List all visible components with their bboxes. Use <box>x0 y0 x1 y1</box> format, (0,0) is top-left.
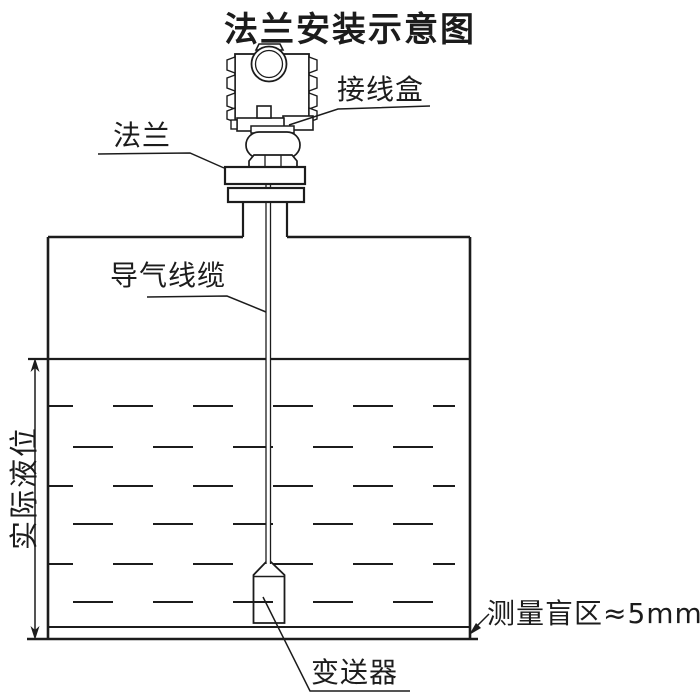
air-guide-cable <box>266 184 271 564</box>
diagram-title: 法兰安装示意图 <box>0 2 700 51</box>
display-cap <box>252 47 287 82</box>
transmitter-head <box>227 44 317 172</box>
label-actual-level: 实际液位 <box>1 413 33 563</box>
label-transmitter: 变送器 <box>311 658 398 687</box>
flange-leader <box>98 153 224 168</box>
label-blind-zone: 测量盲区≈5mm <box>487 599 700 628</box>
label-junction-box: 接线盒 <box>337 75 424 104</box>
housing-fins-right <box>309 57 317 122</box>
housing-fins-left <box>227 57 235 122</box>
flange-plate <box>225 167 305 184</box>
air-cable-leader <box>147 296 266 312</box>
diagram-canvas: 法兰安装示意图 接线盒 法兰 导气线缆 实际液位 变送器 测量盲区≈5mm <box>0 0 700 700</box>
label-air-cable: 导气线缆 <box>110 261 226 290</box>
barrel <box>246 132 300 158</box>
nozzle-collar <box>228 188 304 202</box>
flange-assembly <box>225 167 305 237</box>
tank-outline <box>27 237 478 639</box>
label-flange: 法兰 <box>113 121 171 150</box>
transmitter-probe <box>254 562 285 623</box>
liquid-dashes <box>48 406 455 602</box>
blind-zone-arrow <box>469 614 489 635</box>
